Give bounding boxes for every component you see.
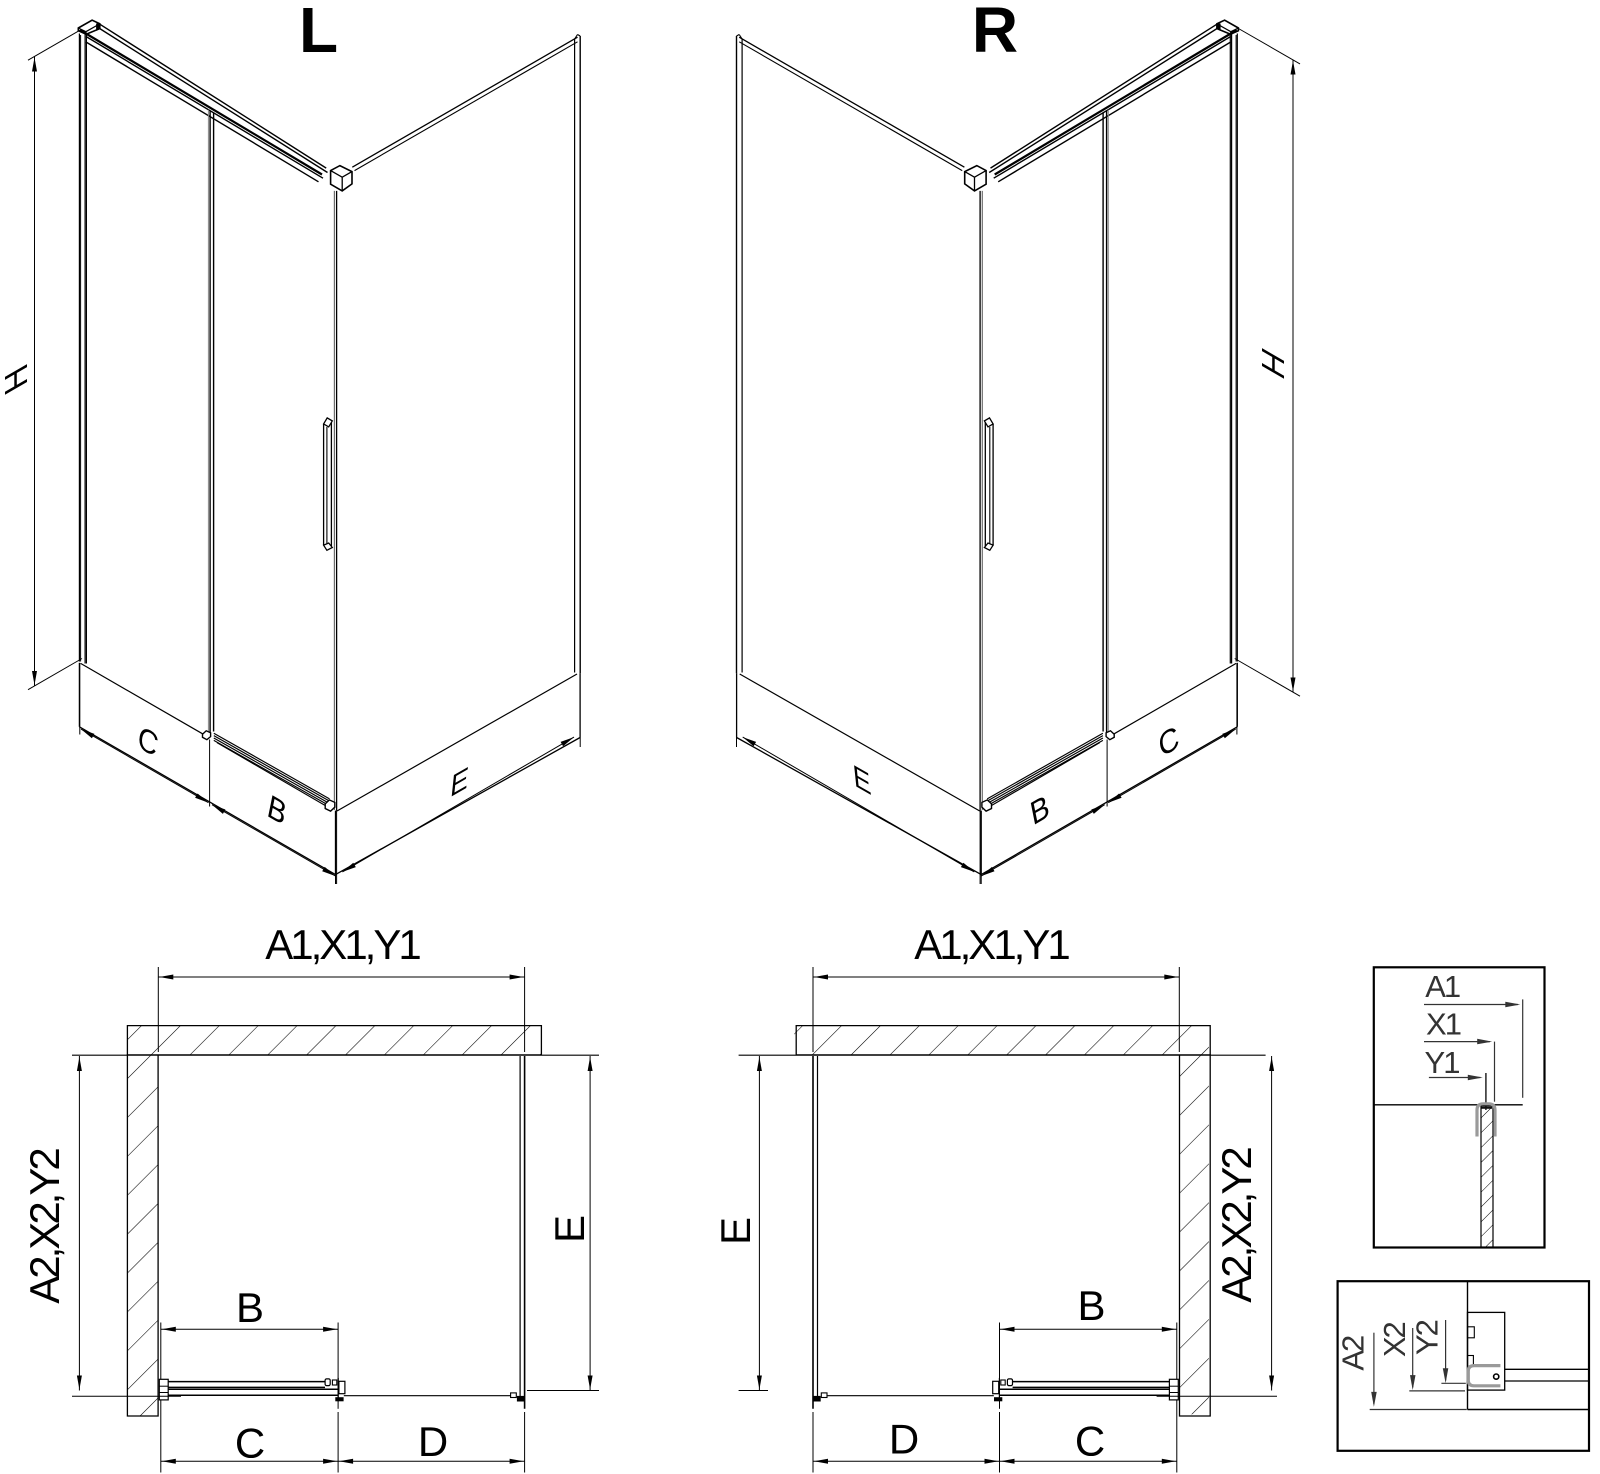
svg-text:A2,X2,Y2: A2,X2,Y2 bbox=[1213, 1148, 1260, 1303]
svg-text:D: D bbox=[418, 1418, 448, 1465]
svg-text:X2: X2 bbox=[1377, 1322, 1412, 1357]
svg-text:L: L bbox=[299, 0, 338, 66]
svg-text:A1,X1,Y1: A1,X1,Y1 bbox=[265, 921, 420, 968]
svg-text:Y1: Y1 bbox=[1425, 1045, 1460, 1080]
svg-text:B: B bbox=[236, 1284, 264, 1331]
svg-text:A2,X2,Y2: A2,X2,Y2 bbox=[21, 1149, 68, 1304]
svg-text:E: E bbox=[712, 1217, 759, 1245]
svg-text:B: B bbox=[1077, 1282, 1105, 1329]
svg-text:D: D bbox=[889, 1416, 919, 1463]
svg-text:C: C bbox=[235, 1420, 265, 1467]
svg-text:A1,X1,Y1: A1,X1,Y1 bbox=[914, 921, 1069, 968]
svg-text:E: E bbox=[546, 1215, 593, 1243]
svg-text:X1: X1 bbox=[1426, 1007, 1461, 1042]
svg-text:A1: A1 bbox=[1425, 969, 1460, 1004]
svg-text:A2: A2 bbox=[1336, 1336, 1371, 1371]
svg-text:Y2: Y2 bbox=[1410, 1320, 1445, 1355]
svg-text:C: C bbox=[1075, 1418, 1105, 1465]
svg-text:R: R bbox=[972, 0, 1018, 66]
